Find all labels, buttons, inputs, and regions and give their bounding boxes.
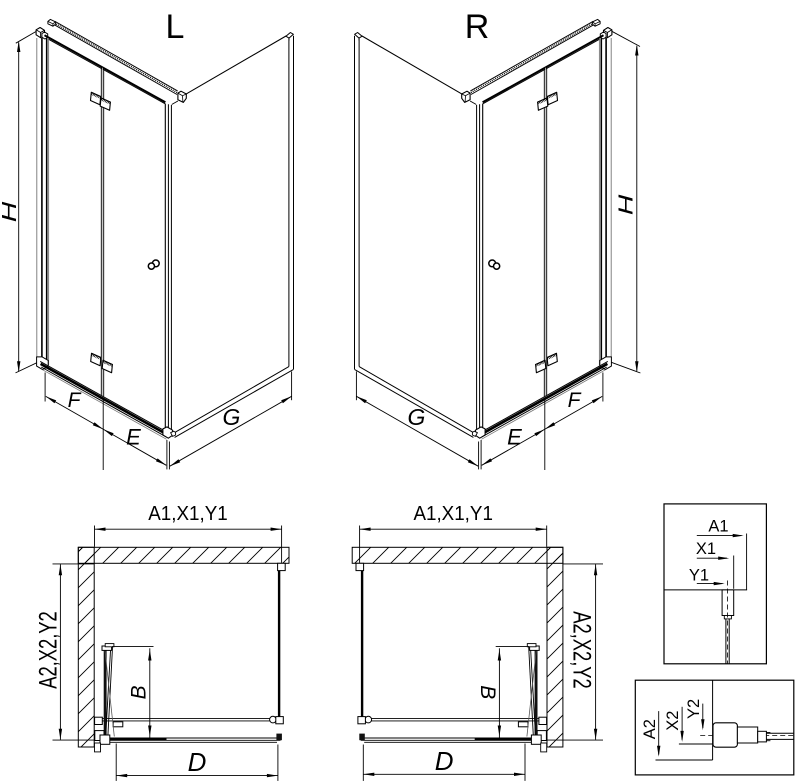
- svg-text:H: H: [0, 201, 21, 222]
- svg-text:D: D: [188, 747, 207, 777]
- svg-text:H: H: [614, 194, 636, 215]
- svg-text:A1,X1,Y1: A1,X1,Y1: [413, 503, 493, 525]
- svg-text:A2: A2: [641, 719, 659, 739]
- svg-text:E: E: [507, 425, 522, 450]
- svg-text:F: F: [68, 389, 82, 412]
- svg-text:X1: X1: [696, 540, 716, 558]
- svg-text:D: D: [435, 746, 454, 776]
- svg-text:A1: A1: [708, 518, 728, 536]
- svg-text:B: B: [476, 685, 499, 699]
- svg-text:B: B: [128, 685, 151, 699]
- svg-text:A1,X1,Y1: A1,X1,Y1: [148, 503, 228, 525]
- svg-text:R: R: [465, 8, 490, 46]
- svg-text:A2,X2,Y2: A2,X2,Y2: [35, 611, 63, 689]
- svg-text:G: G: [408, 404, 426, 430]
- svg-text:E: E: [126, 425, 141, 450]
- svg-text:F: F: [568, 389, 582, 412]
- svg-text:A2,X2,Y2: A2,X2,Y2: [568, 611, 596, 689]
- svg-text:L: L: [166, 8, 185, 46]
- svg-text:Y2: Y2: [685, 699, 703, 719]
- svg-text:Y1: Y1: [689, 566, 709, 584]
- svg-text:X2: X2: [664, 711, 682, 731]
- svg-text:G: G: [223, 404, 241, 430]
